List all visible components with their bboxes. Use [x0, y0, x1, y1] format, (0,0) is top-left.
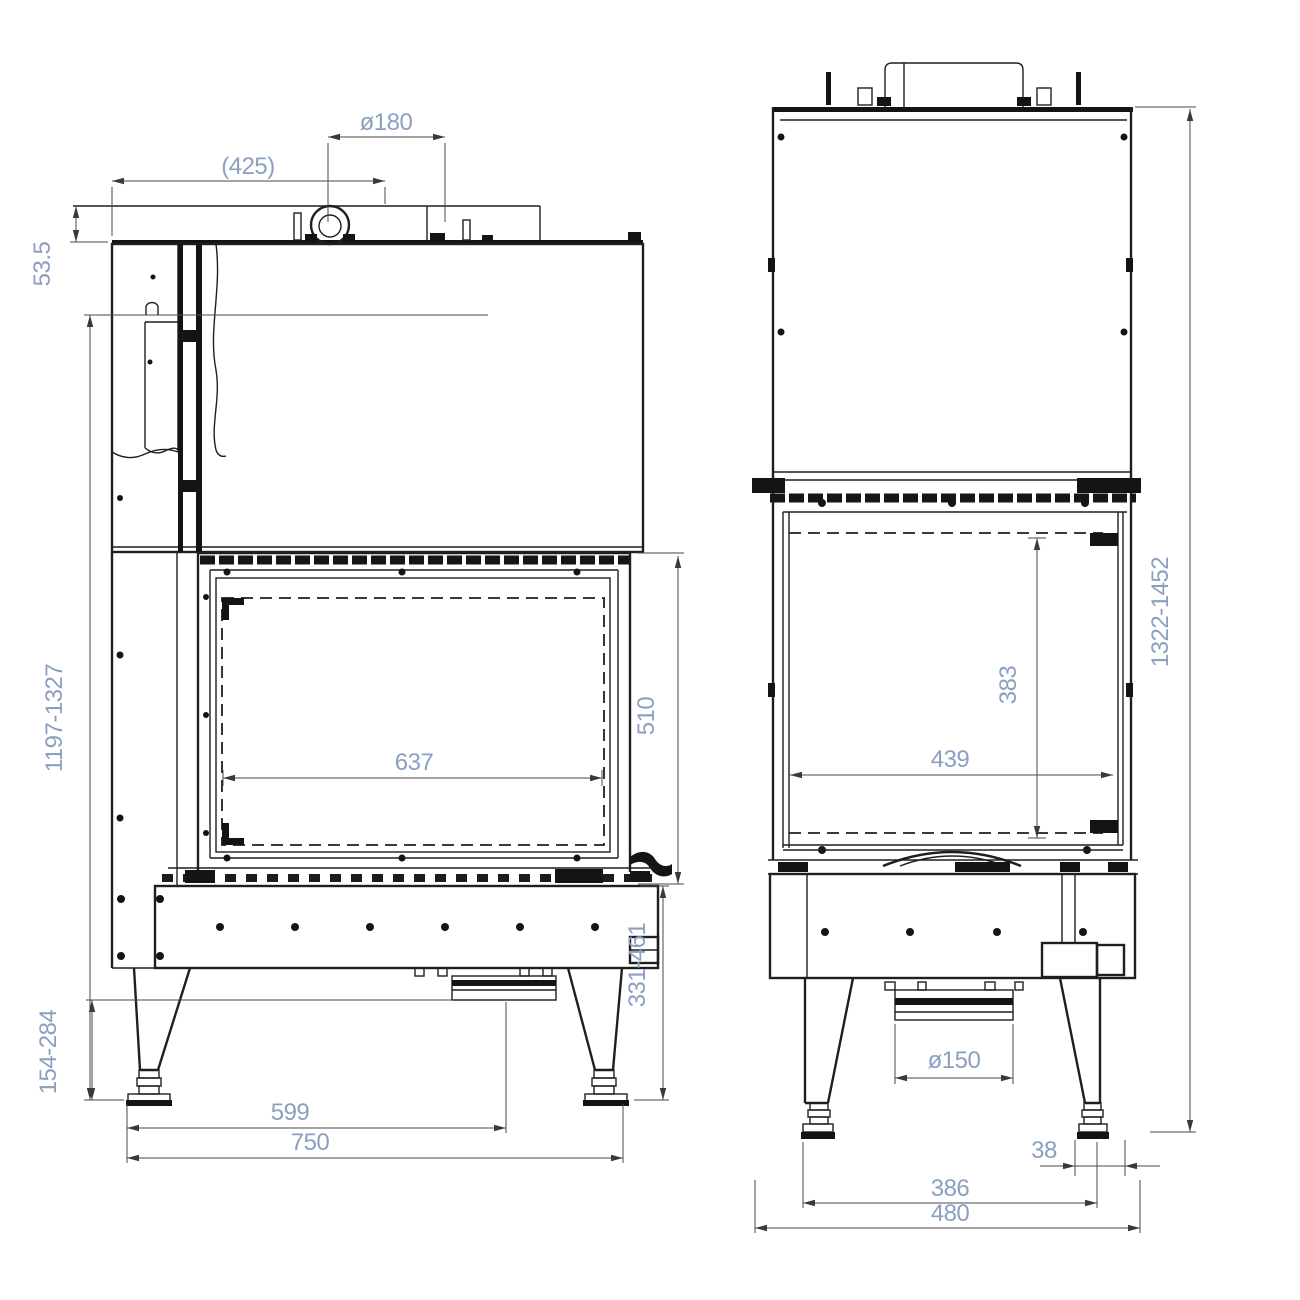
screw	[117, 495, 123, 501]
screw	[818, 499, 826, 507]
screw	[117, 815, 124, 822]
foot-adjuster	[1082, 1110, 1103, 1117]
glass-dashed-outline	[222, 598, 604, 845]
base-screw	[993, 928, 1001, 936]
screw	[574, 855, 581, 862]
ext-lines-38	[1075, 1140, 1125, 1176]
foot-plate	[585, 1094, 627, 1101]
screw	[1081, 499, 1089, 507]
firebox-wall-bar	[178, 244, 183, 552]
connection-box	[1042, 943, 1097, 977]
glass-frame	[216, 578, 610, 852]
top-stud	[1037, 88, 1051, 105]
dim-label-height-range: 1322-1452	[1147, 557, 1174, 667]
door-front-edge	[783, 512, 789, 848]
dim-label-feet-span: 386	[931, 1175, 970, 1202]
base-screw	[906, 928, 914, 936]
base-box	[770, 874, 1135, 978]
foot-adjuster	[592, 1078, 616, 1086]
bolt	[156, 895, 164, 903]
dim-label-glass-height: 383	[995, 666, 1022, 705]
dim-label-glass-width: 637	[395, 749, 434, 776]
screw	[203, 712, 209, 718]
screw	[203, 594, 209, 600]
ext-lines-750	[127, 1104, 623, 1163]
ext-lines-154	[86, 1000, 452, 1100]
under-stud	[985, 982, 995, 990]
under-stud	[438, 968, 447, 976]
wall-tab	[1126, 683, 1133, 697]
band-block	[1060, 862, 1080, 872]
top-plate	[772, 107, 1133, 112]
foot-adjuster	[1084, 1117, 1101, 1124]
firebox-wall-bar	[196, 244, 202, 552]
leg-front	[805, 978, 853, 1103]
base-screw	[516, 923, 524, 931]
leg-rear	[1060, 978, 1100, 1103]
wall-tab	[768, 258, 775, 272]
screw	[574, 569, 581, 576]
band-block	[185, 870, 215, 883]
door-outline	[198, 553, 630, 872]
dim-label-base-height-range: 331-461	[624, 923, 651, 1008]
leg-right	[568, 968, 622, 1070]
wall-tab	[183, 330, 196, 342]
dim-label-leg-clearance: 154-284	[35, 1010, 62, 1095]
screw	[778, 134, 785, 141]
flue-collar-inner	[319, 215, 341, 237]
foot-plate	[803, 1124, 833, 1132]
base-screw	[821, 928, 829, 936]
foot-adjuster	[139, 1086, 159, 1094]
bolt	[156, 952, 164, 960]
dim-label-air-inlet: ø150	[928, 1047, 981, 1074]
base-screw	[591, 923, 599, 931]
glass-corner-bracket	[222, 598, 244, 620]
dim-label-height-range: 1197-1327	[41, 664, 68, 773]
hinge-plate	[1077, 478, 1141, 493]
flange-hook	[146, 303, 158, 315]
base-screw	[291, 923, 299, 931]
foot-pad	[1077, 1132, 1109, 1139]
air-duct-band	[452, 980, 556, 986]
band-block	[630, 871, 650, 882]
front-dimensions: ø180 (425) 53.5 1197-1327 637 510 154-28…	[29, 109, 684, 1163]
connection-box-small	[1097, 945, 1124, 975]
technical-drawing: ø180 (425) 53.5 1197-1327 637 510 154-28…	[0, 0, 1300, 1300]
band-block	[778, 862, 808, 872]
foot-pad	[801, 1132, 835, 1139]
top-bolt	[628, 232, 641, 241]
wall-tab	[183, 480, 196, 492]
band-block	[1108, 862, 1128, 872]
panel-break-bottom	[112, 449, 178, 457]
panel-inner	[145, 322, 178, 448]
bolt	[117, 952, 125, 960]
dim-label-flue-offset: (425)	[221, 153, 275, 180]
top-stud	[858, 88, 872, 105]
dim-label-top-edge: 53.5	[29, 241, 56, 286]
wall-tab	[768, 683, 775, 697]
dim-label-width: 750	[291, 1129, 330, 1156]
screw	[224, 569, 231, 576]
foot-adjuster	[808, 1110, 830, 1117]
dim-label-glass-height: 510	[633, 697, 660, 736]
side-view: 1322-1452 383 439 ø150 38 386 480	[752, 63, 1196, 1233]
band-block	[955, 862, 1010, 872]
foot-adjuster	[594, 1086, 614, 1094]
dim-label-duct-center: 599	[271, 1099, 310, 1126]
front-view: ø180 (425) 53.5 1197-1327 637 510 154-28…	[29, 109, 684, 1163]
glass-corner-bracket	[1090, 533, 1118, 546]
base-screw	[1079, 928, 1087, 936]
base-screw	[441, 923, 449, 931]
glass-corner-bracket	[222, 823, 244, 845]
base-screw	[216, 923, 224, 931]
foot-pad	[126, 1100, 172, 1106]
break-line	[213, 244, 226, 456]
leg-left	[134, 968, 190, 1070]
top-stud	[463, 220, 470, 240]
top-pin	[826, 72, 831, 105]
band-block	[555, 869, 603, 883]
base-box	[155, 886, 658, 968]
wall-tab	[1126, 258, 1133, 272]
glass-corner-bracket	[1090, 820, 1118, 833]
under-stud	[918, 982, 926, 990]
dim-label-depth: 480	[931, 1200, 970, 1227]
screw	[948, 499, 956, 507]
foot-plate	[128, 1094, 170, 1101]
under-stud	[543, 968, 552, 976]
flue-fillet-left	[305, 234, 317, 242]
screw	[1121, 329, 1128, 336]
under-stud	[1015, 982, 1023, 990]
hinge-plate	[752, 478, 785, 493]
top-stud	[294, 213, 301, 240]
flue-connection-box	[885, 63, 1023, 107]
base-inner-lines	[807, 874, 1075, 978]
upper-box	[112, 244, 643, 552]
screw	[778, 329, 785, 336]
screw	[117, 652, 124, 659]
screw	[399, 569, 406, 576]
rear-inner-edge	[1118, 512, 1123, 845]
foot-pad	[583, 1100, 629, 1106]
top-bolt	[1017, 97, 1031, 106]
foot-adjuster	[810, 1117, 828, 1124]
under-stud	[520, 968, 529, 976]
dim-label-foot-inset: 38	[1031, 1137, 1057, 1164]
dim-label-glass-depth: 439	[931, 746, 970, 773]
screw	[148, 360, 153, 365]
foot-adjuster	[137, 1078, 161, 1086]
firebox-bottom-lines	[783, 845, 1123, 850]
screw	[1121, 134, 1128, 141]
drawing-canvas: ø180 (425) 53.5 1197-1327 637 510 154-28…	[0, 0, 1300, 1300]
base-screw	[366, 923, 374, 931]
foot-plate	[1079, 1124, 1107, 1132]
air-duct-box	[452, 976, 556, 1000]
dim-label-flue-diameter: ø180	[360, 109, 413, 136]
under-stud	[885, 982, 895, 990]
band-lines	[768, 860, 1138, 874]
top-pin	[1076, 72, 1081, 105]
top-bolt	[877, 97, 891, 106]
door-frame	[210, 570, 618, 858]
under-stud	[415, 968, 424, 976]
screw	[151, 275, 156, 280]
top-bolt	[430, 233, 445, 241]
air-inlet-band	[895, 998, 1013, 1005]
top-bolt	[482, 235, 493, 241]
flue-fillet-right	[343, 234, 355, 242]
screw	[224, 855, 231, 862]
screw	[399, 855, 406, 862]
bolt	[117, 895, 125, 903]
screw	[203, 830, 209, 836]
